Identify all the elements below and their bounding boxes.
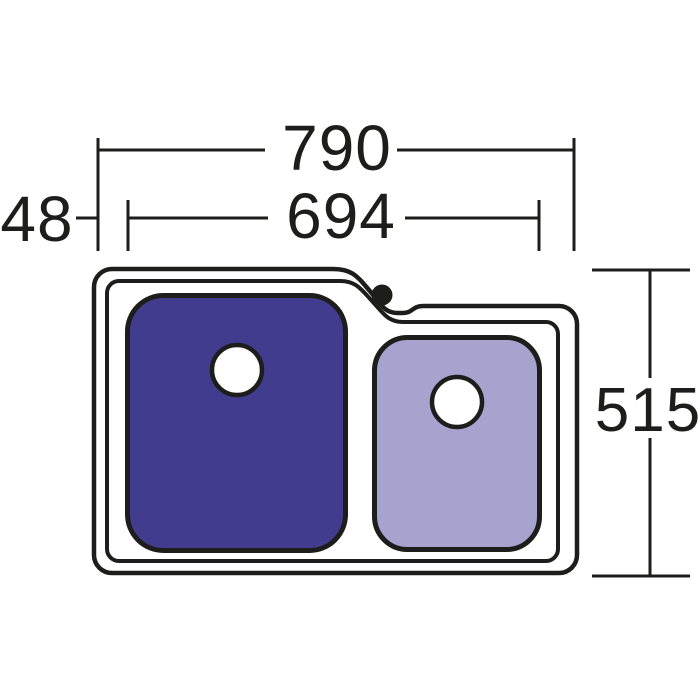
tap-hole-dot: [372, 285, 393, 306]
diagram-canvas: 790 694 48 515: [0, 0, 700, 700]
overall-width-label: 790: [282, 112, 392, 184]
overall-depth-label: 515: [595, 376, 700, 445]
small-bowl: [375, 338, 540, 550]
small-bowl-drain-hole: [432, 377, 482, 427]
left-offset-label: 48: [0, 183, 73, 255]
sink-dimension-diagram: 790 694 48 515: [0, 0, 700, 700]
bowl-span-width-label: 694: [286, 180, 396, 252]
large-bowl: [128, 296, 346, 551]
large-bowl-drain-hole: [212, 345, 262, 395]
